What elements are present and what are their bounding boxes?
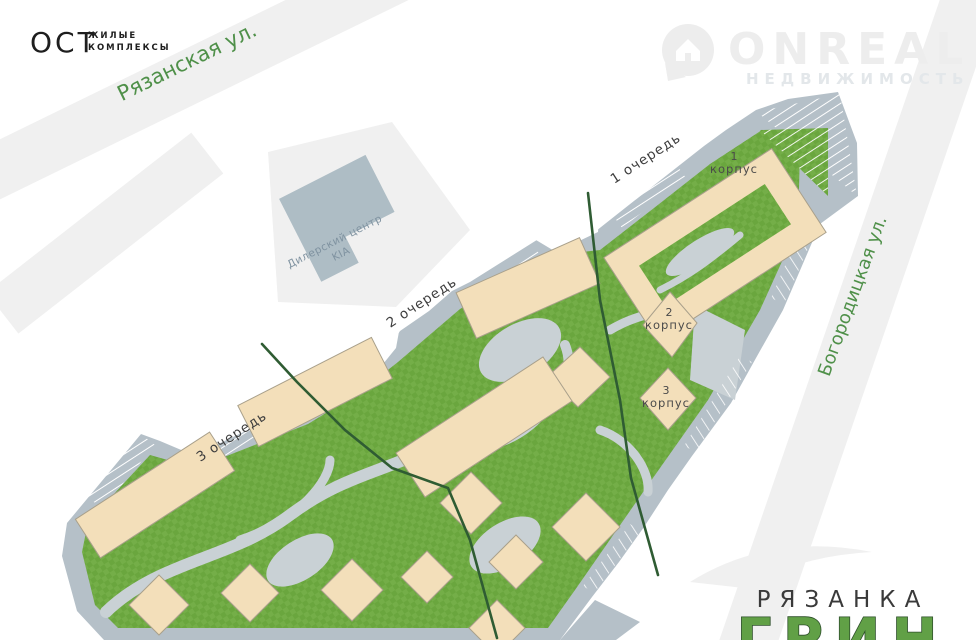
project-title: РЯЗАНКА ГРИН <box>737 587 949 640</box>
svg-text:корпус: корпус <box>645 318 693 332</box>
ost-logo-sub1: ЖИЛЫЕ <box>88 31 137 41</box>
onreal-subtitle: НЕДВИЖИМОСТЬ <box>746 70 969 88</box>
svg-text:корпус: корпус <box>642 396 690 410</box>
svg-text:корпус: корпус <box>710 162 758 176</box>
map-canvas: Дилерский центр KIA ONREAL НЕДВИЖИМОСТЬ <box>0 0 976 640</box>
onreal-name: ONREAL <box>728 24 970 75</box>
ost-logo-sub2: КОМПЛЕКСЫ <box>88 43 171 53</box>
site-plan-map: Дилерский центр KIA ONREAL НЕДВИЖИМОСТЬ <box>0 0 976 640</box>
project-title-line2: ГРИН <box>737 607 949 640</box>
